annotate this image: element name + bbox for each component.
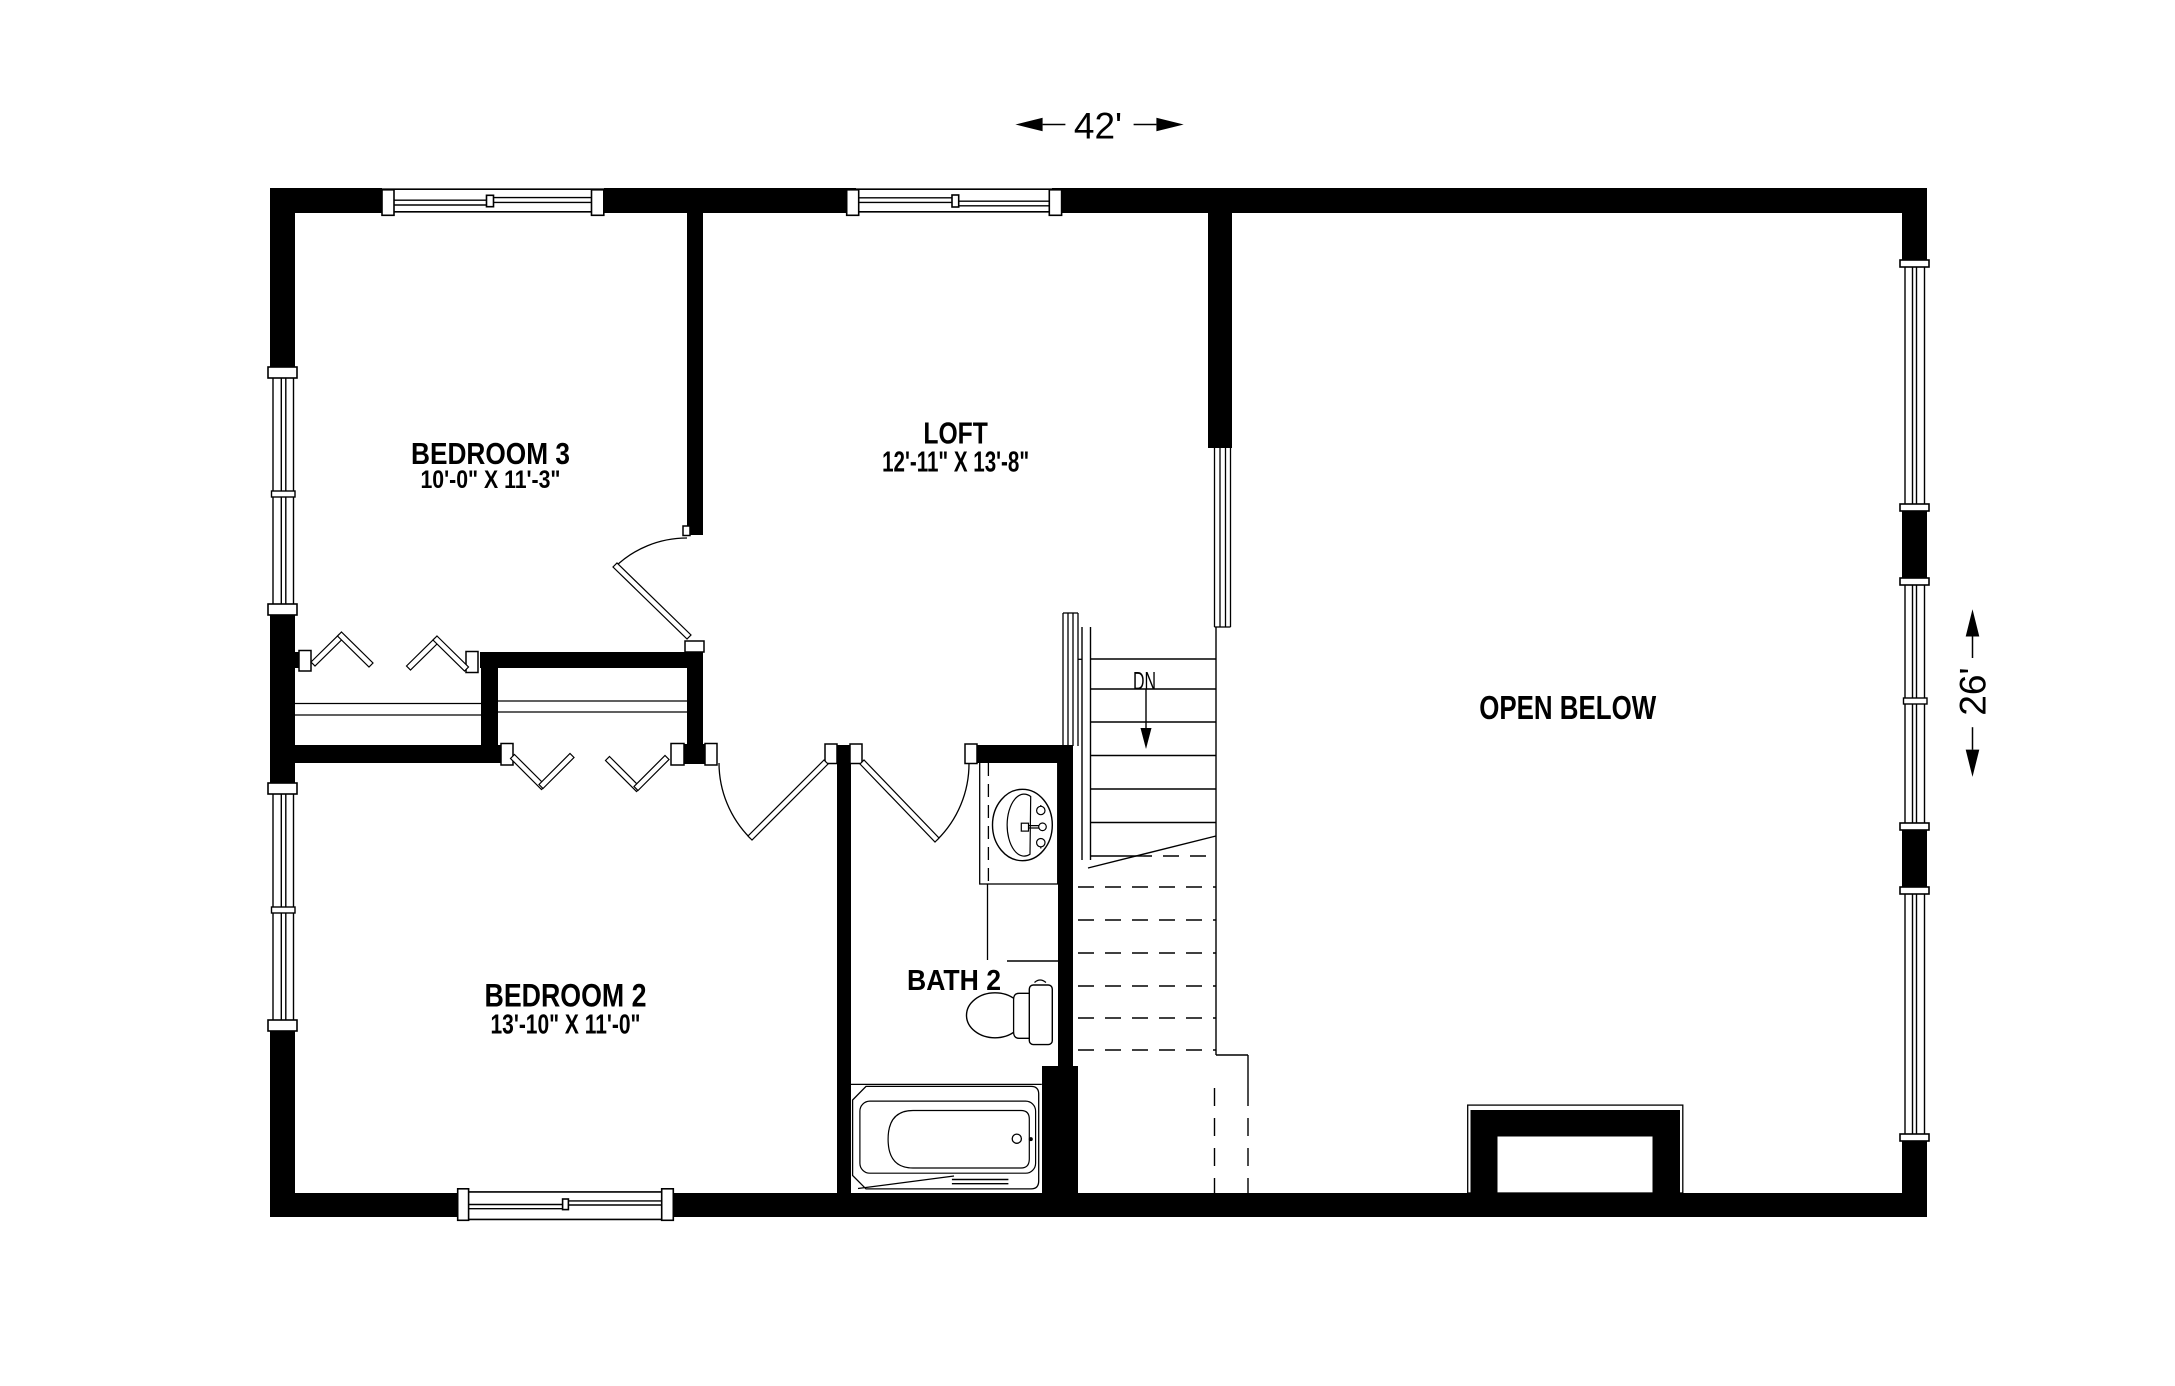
svg-text:DN: DN — [1133, 668, 1156, 696]
svg-text:BATH 2: BATH 2 — [907, 965, 1001, 997]
svg-text:26': 26' — [1953, 667, 1994, 715]
svg-text:LOFT: LOFT — [923, 416, 988, 451]
svg-text:13'-10" X 11'-0": 13'-10" X 11'-0" — [491, 1009, 641, 1040]
svg-text:10'-0" X 11'-3": 10'-0" X 11'-3" — [421, 466, 561, 494]
svg-text:42': 42' — [1074, 106, 1122, 147]
svg-text:OPEN BELOW: OPEN BELOW — [1479, 689, 1657, 726]
svg-text:12'-11" X 13'-8": 12'-11" X 13'-8" — [882, 447, 1029, 479]
